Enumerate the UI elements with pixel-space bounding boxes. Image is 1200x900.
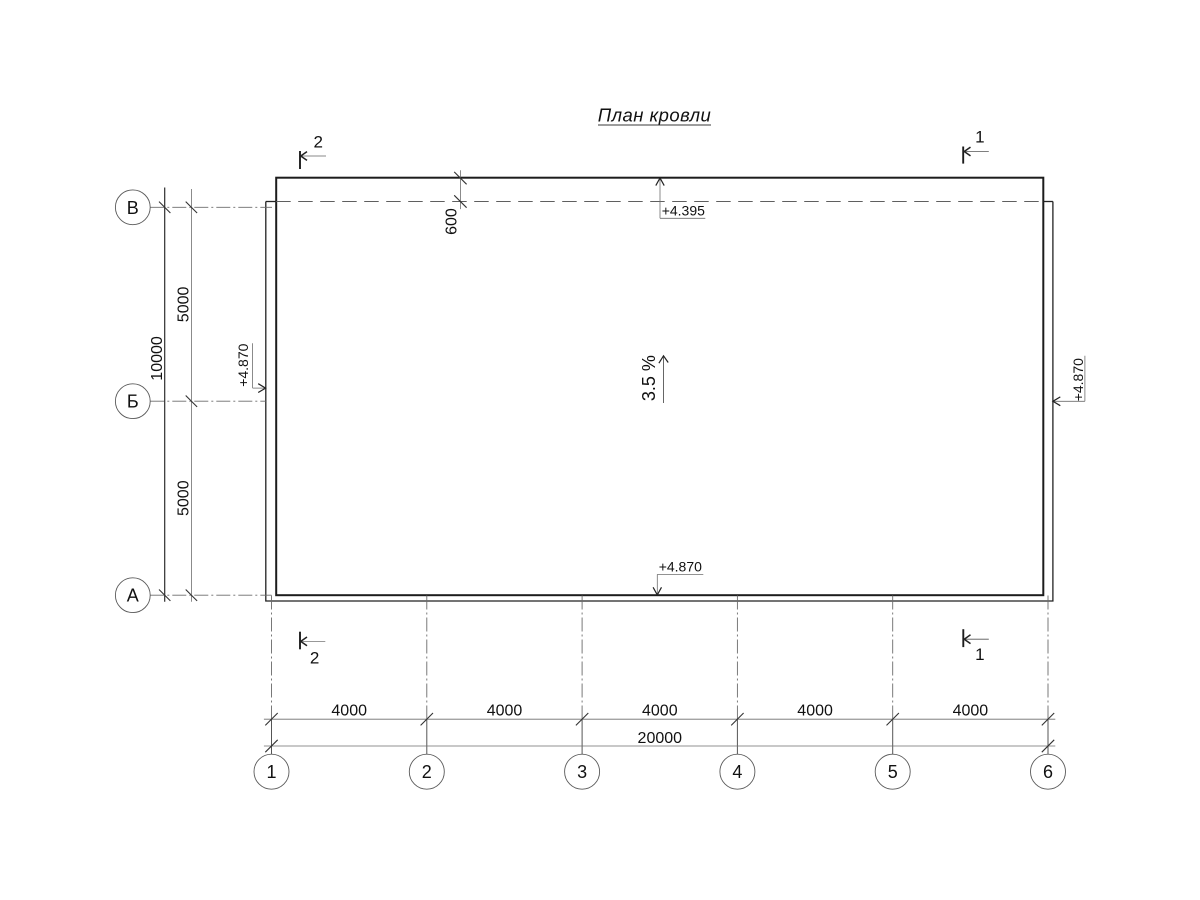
svg-text:4000: 4000 xyxy=(487,702,523,719)
svg-text:1: 1 xyxy=(266,762,276,782)
svg-text:4000: 4000 xyxy=(797,702,833,719)
svg-text:+4.870: +4.870 xyxy=(1070,358,1086,401)
svg-text:5000: 5000 xyxy=(175,287,192,323)
svg-text:+4.870: +4.870 xyxy=(659,558,702,574)
svg-text:10000: 10000 xyxy=(149,336,166,381)
svg-text:20000: 20000 xyxy=(638,730,683,747)
svg-text:4: 4 xyxy=(732,762,742,782)
svg-text:600: 600 xyxy=(444,208,461,235)
svg-text:4000: 4000 xyxy=(642,702,678,719)
svg-text:План кровли: План кровли xyxy=(598,105,711,126)
svg-text:В: В xyxy=(127,198,139,218)
svg-text:5000: 5000 xyxy=(175,480,192,516)
svg-text:3: 3 xyxy=(577,762,587,782)
svg-text:2: 2 xyxy=(310,648,319,667)
svg-text:2: 2 xyxy=(422,762,432,782)
svg-text:2: 2 xyxy=(313,132,322,151)
svg-text:4000: 4000 xyxy=(331,702,367,719)
svg-text:1: 1 xyxy=(975,645,984,664)
svg-text:4000: 4000 xyxy=(953,702,989,719)
svg-text:А: А xyxy=(127,586,139,606)
svg-text:5: 5 xyxy=(888,762,898,782)
svg-text:3.5 %: 3.5 % xyxy=(639,355,659,401)
svg-text:6: 6 xyxy=(1043,762,1053,782)
svg-text:Б: Б xyxy=(127,392,139,412)
svg-text:1: 1 xyxy=(975,128,984,147)
svg-text:+4.395: +4.395 xyxy=(662,202,705,218)
svg-text:+4.870: +4.870 xyxy=(235,343,251,386)
